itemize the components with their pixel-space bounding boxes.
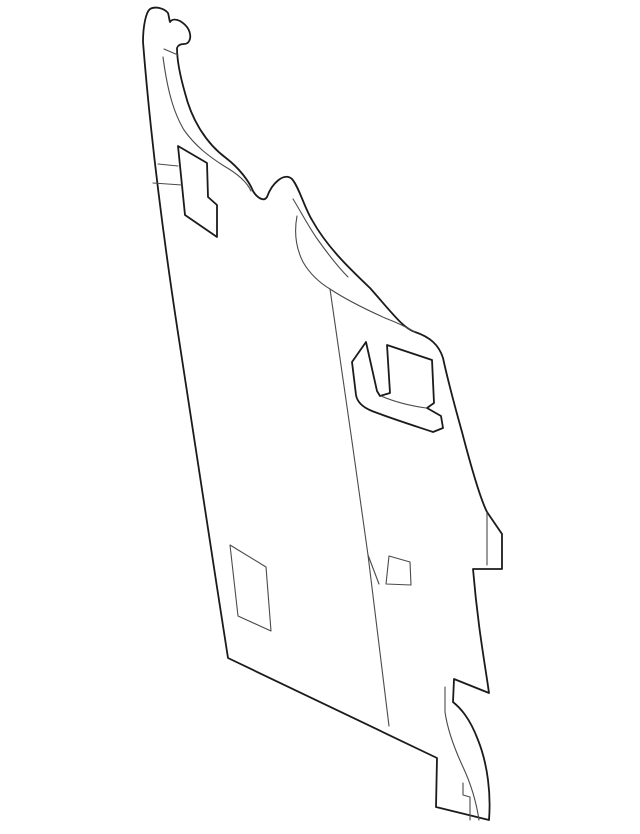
part-line-drawing-svg: [0, 0, 640, 834]
hook-shaped-cutout: [352, 342, 443, 432]
fold-line: [330, 289, 389, 726]
part-line-drawing-paths: [143, 8, 502, 820]
hook-notch-tick: [164, 49, 178, 55]
parallelogram-cutout: [230, 545, 271, 631]
hump-inner-edge-a: [293, 199, 348, 277]
part-diagram-page: [0, 0, 640, 834]
upper-cutout: [178, 146, 217, 237]
part-outline: [143, 8, 502, 820]
mid-box-cutout: [386, 556, 411, 585]
foot-inner-curve: [445, 687, 479, 820]
upper-cutout-tick-1: [158, 164, 178, 166]
hook-shaped-cutout-inner-edge: [381, 396, 426, 408]
